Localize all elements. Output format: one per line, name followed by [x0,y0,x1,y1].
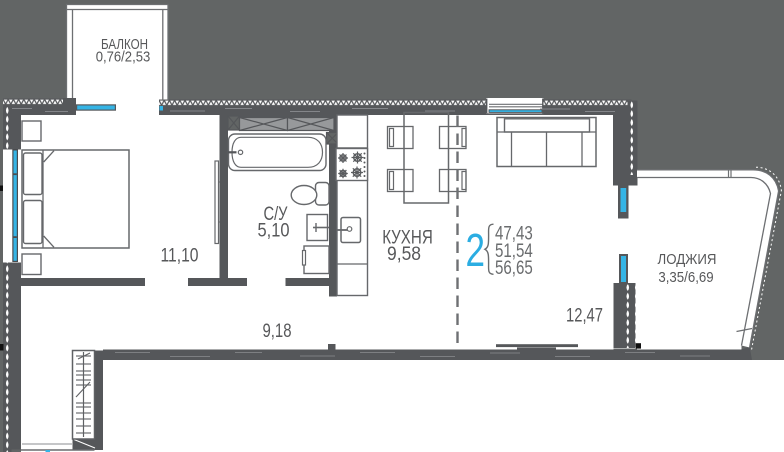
svg-text:ЛОДЖИЯ: ЛОДЖИЯ [658,251,717,268]
svg-text:0,76/2,53: 0,76/2,53 [96,49,151,66]
svg-text:5,10: 5,10 [258,221,290,242]
svg-text:56,65: 56,65 [495,258,533,279]
svg-text:3,35/6,69: 3,35/6,69 [658,269,713,286]
svg-text:9,18: 9,18 [263,321,292,342]
svg-text:12,47: 12,47 [566,306,603,327]
svg-text:11,10: 11,10 [161,246,199,267]
svg-text:9,58: 9,58 [387,244,421,265]
svg-text:2: 2 [466,224,486,276]
